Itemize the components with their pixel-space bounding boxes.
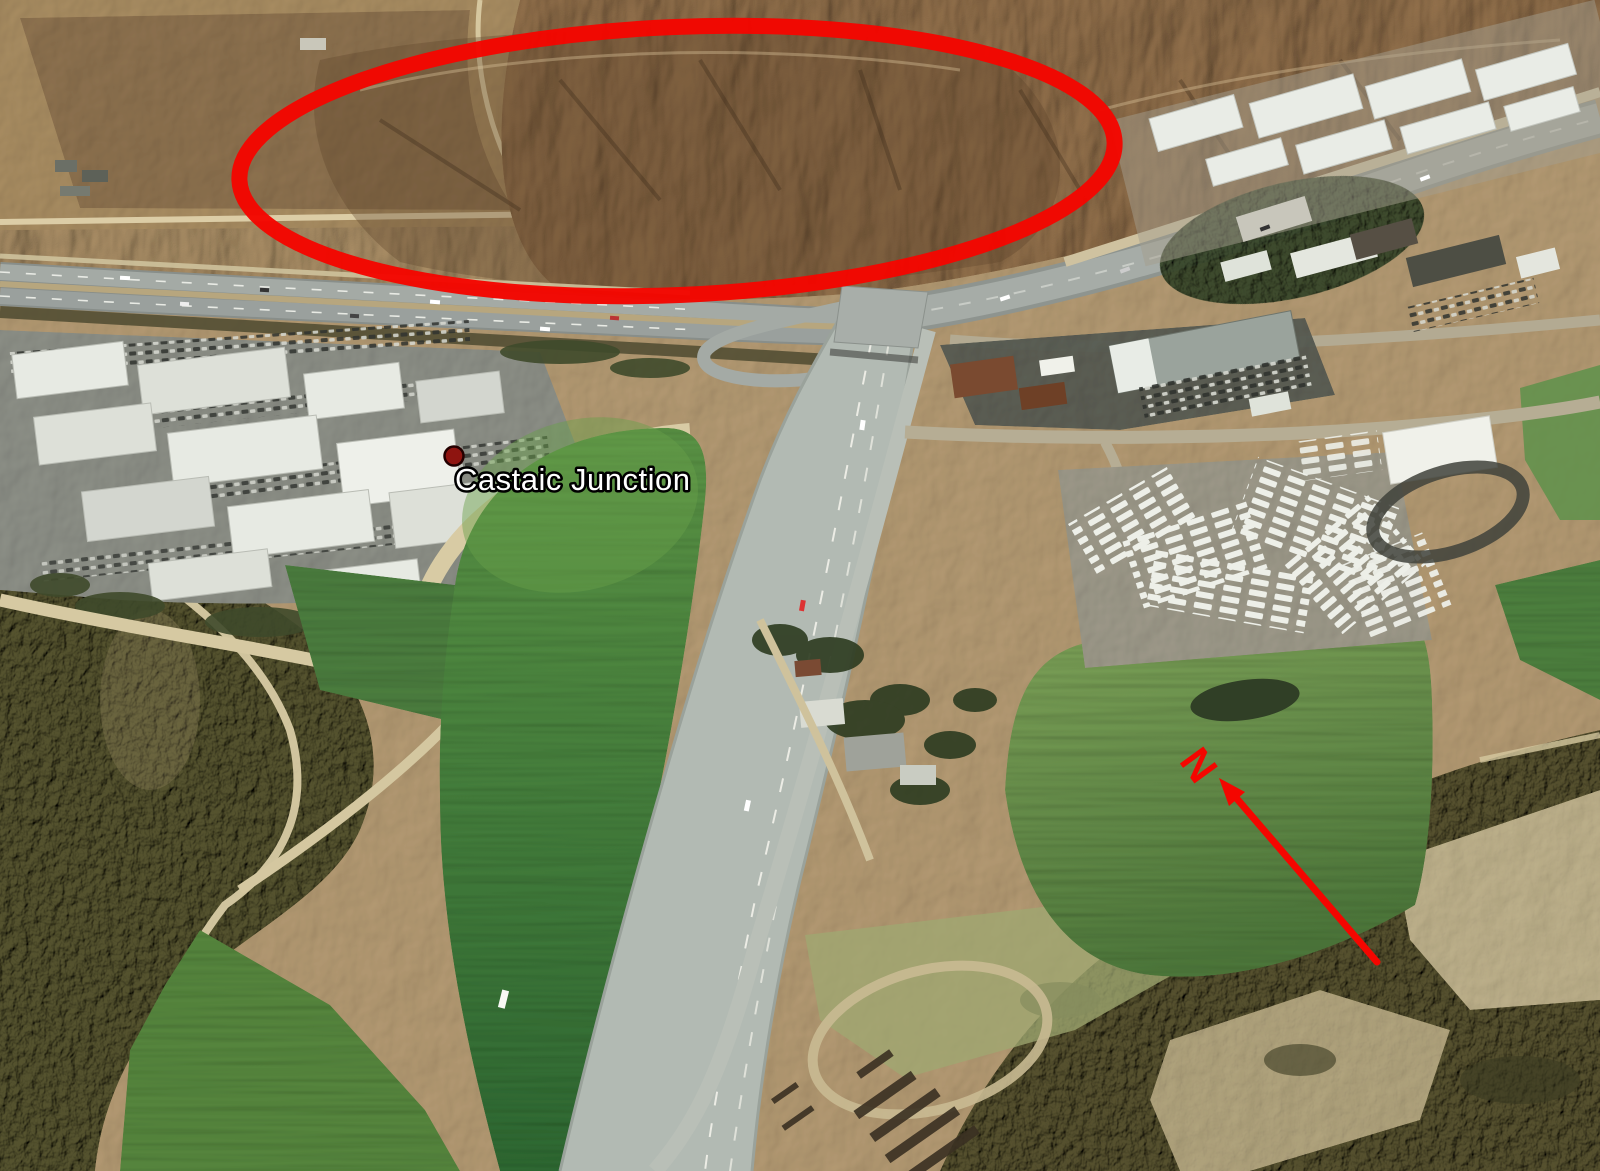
annotated-aerial-image: Castaic Junction N <box>0 0 1600 1171</box>
farm-building <box>900 765 936 785</box>
vehicle <box>180 302 189 306</box>
vehicle <box>610 316 619 321</box>
farm-building <box>844 732 907 771</box>
overpass-bridge <box>834 286 928 348</box>
farm-structure <box>82 170 108 182</box>
green-field-east <box>1005 612 1433 977</box>
vehicle <box>540 327 550 332</box>
place-label: Castaic Junction <box>455 462 690 497</box>
vehicle <box>260 288 269 292</box>
vehicle <box>430 300 440 305</box>
satellite-canvas: Castaic Junction N <box>0 0 1600 1171</box>
vehicle <box>350 314 359 318</box>
farm-structure <box>60 186 90 196</box>
farm-structure <box>300 38 326 50</box>
farm-house <box>794 659 821 677</box>
vehicle <box>120 276 130 281</box>
farm-structure <box>55 160 77 172</box>
